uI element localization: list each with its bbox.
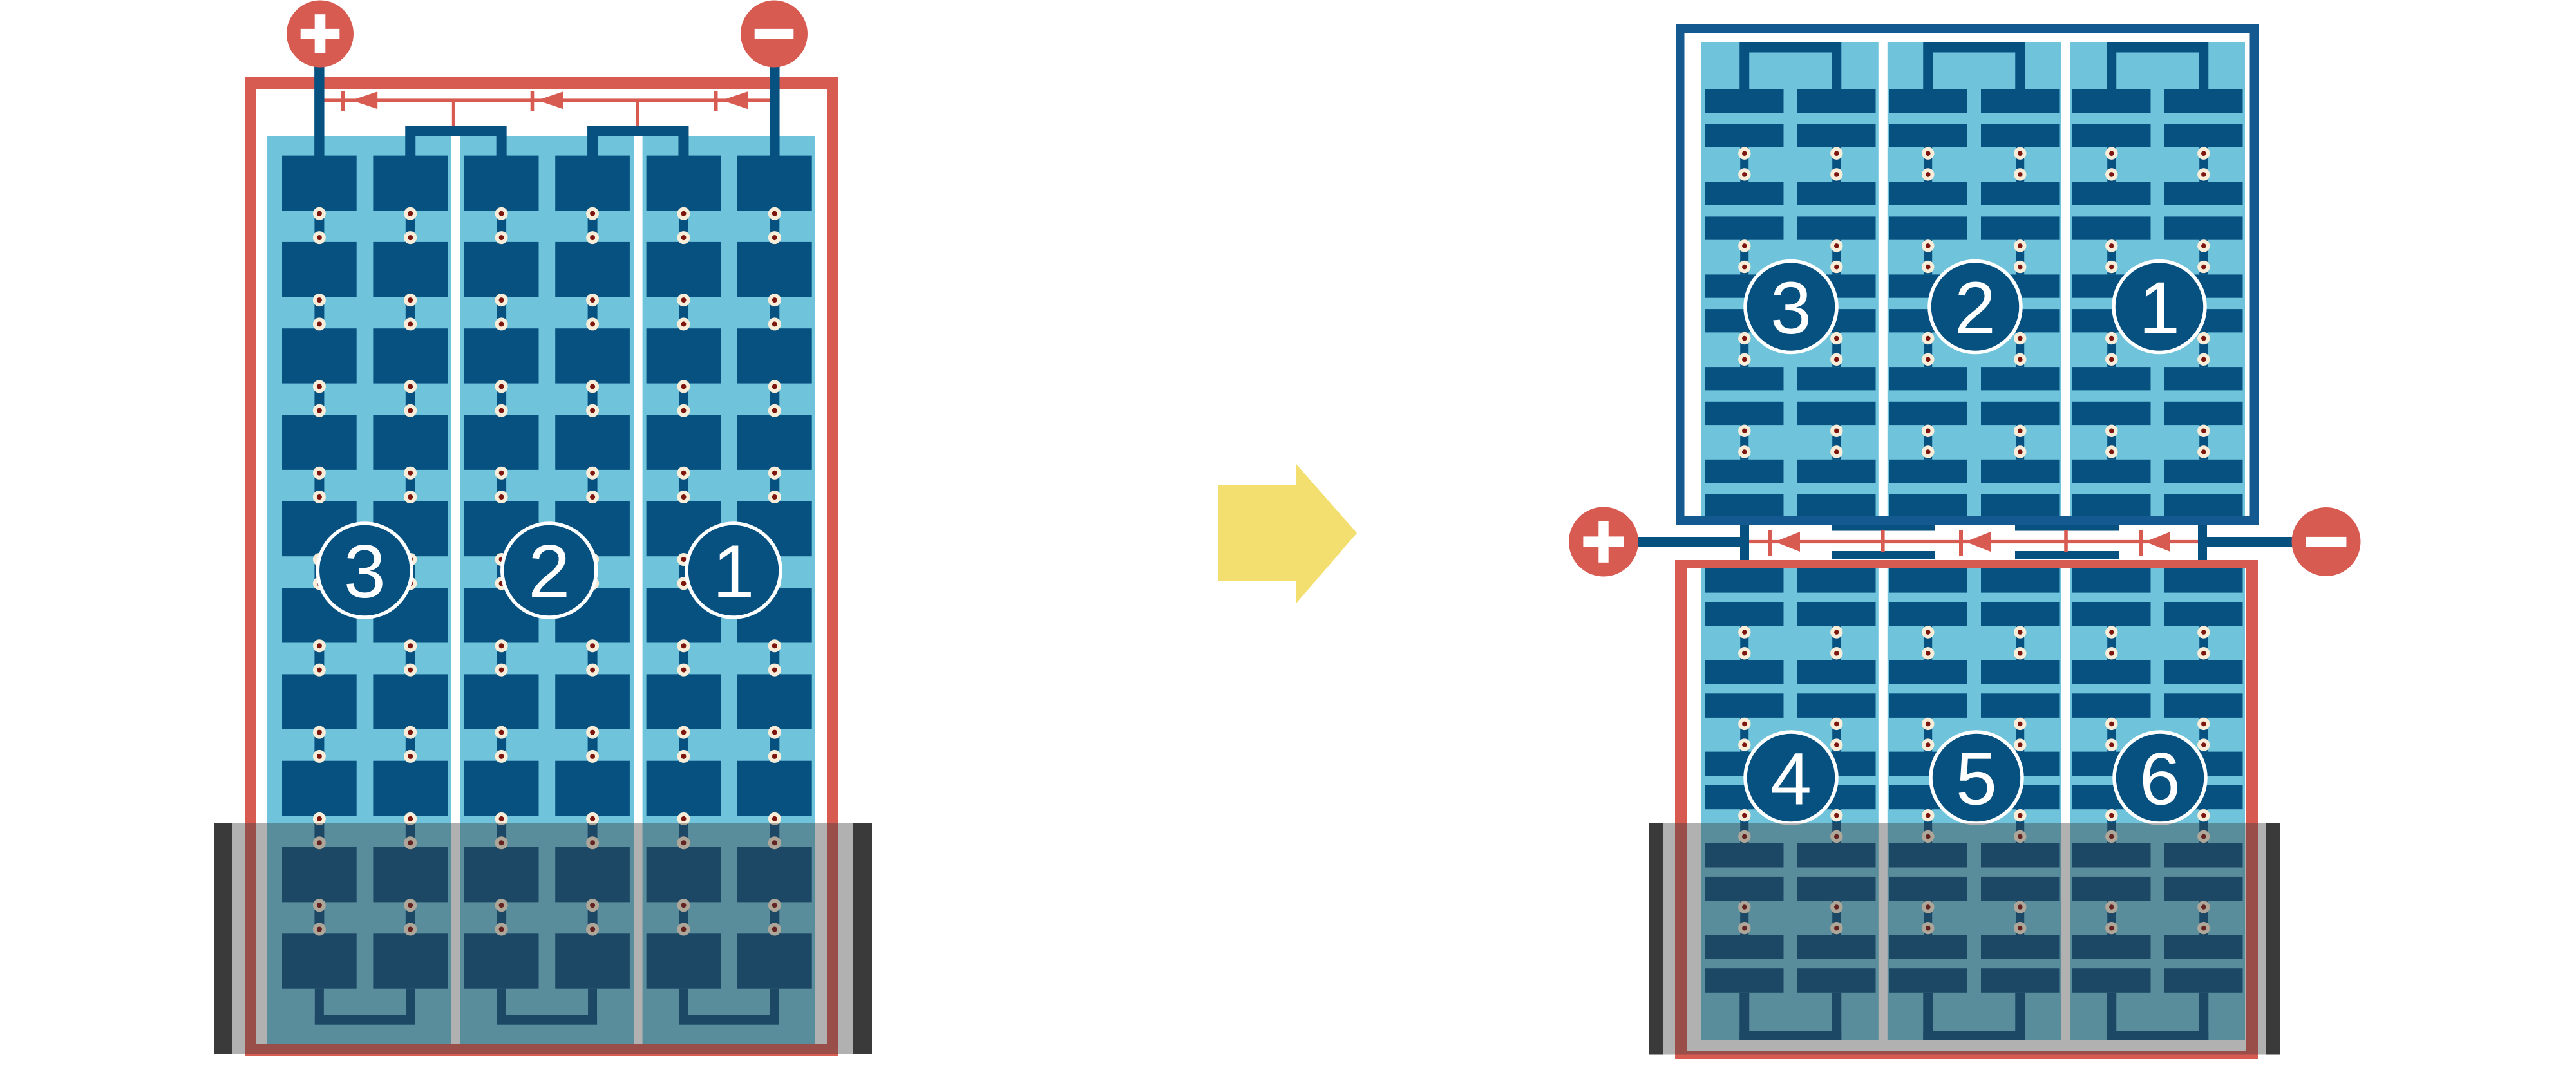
- svg-text:5: 5: [1956, 738, 1997, 821]
- svg-text:3: 3: [1770, 267, 1812, 350]
- svg-text:1: 1: [712, 529, 754, 614]
- svg-text:4: 4: [1770, 738, 1812, 821]
- svg-text:6: 6: [2139, 738, 2181, 821]
- svg-text:2: 2: [528, 529, 570, 614]
- svg-text:3: 3: [344, 529, 386, 614]
- svg-text:2: 2: [1955, 267, 1996, 350]
- svg-text:1: 1: [2139, 267, 2180, 350]
